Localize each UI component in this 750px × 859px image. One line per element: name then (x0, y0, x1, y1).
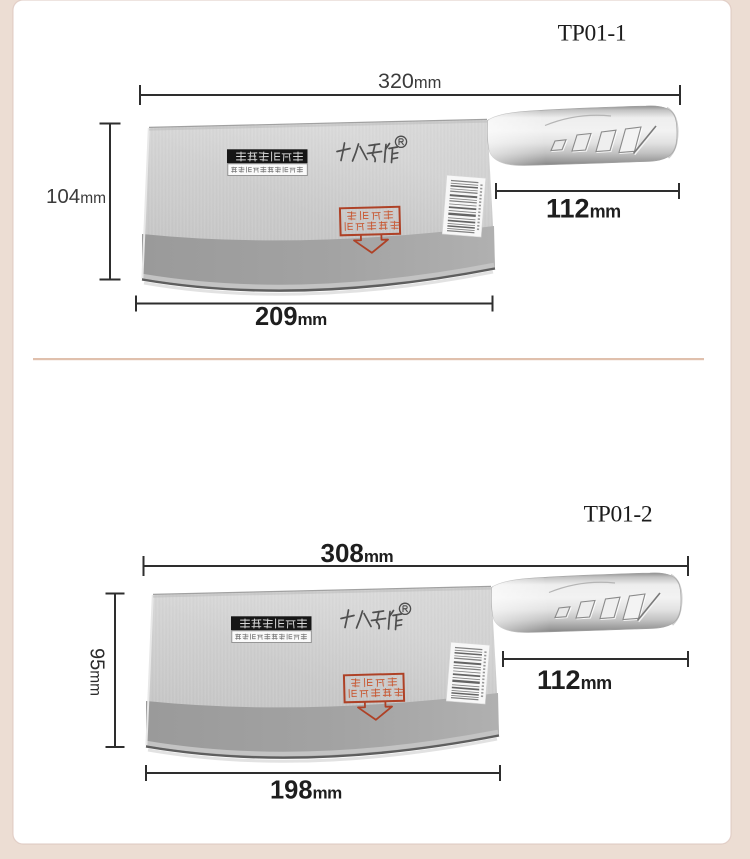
svg-text:95mm: 95mm (86, 648, 108, 696)
svg-text:TP01-2: TP01-2 (584, 502, 653, 528)
svg-text:TP01-1: TP01-1 (558, 21, 627, 47)
